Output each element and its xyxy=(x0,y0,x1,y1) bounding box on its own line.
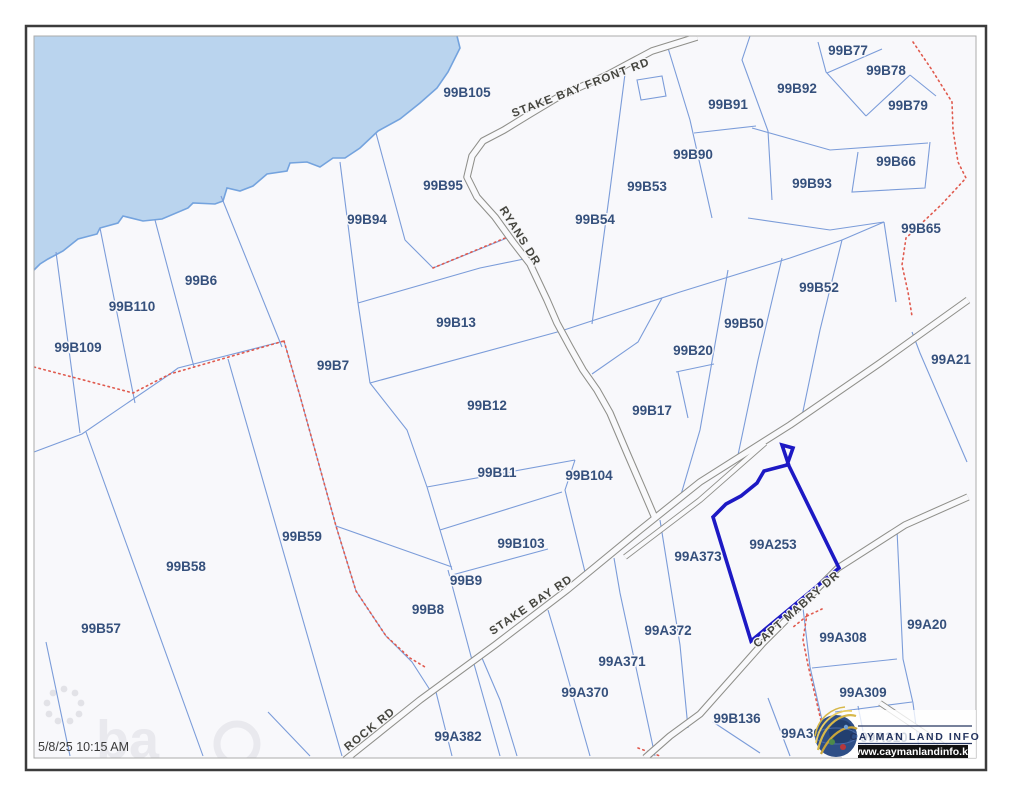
parcel-label-99A253[interactable]: 99A253 xyxy=(749,537,797,552)
parcel-label-99B94[interactable]: 99B94 xyxy=(347,212,387,227)
parcel-label-99A370[interactable]: 99A370 xyxy=(561,685,608,700)
parcel-label-99B8[interactable]: 99B8 xyxy=(412,602,445,617)
parcel-label-99B79[interactable]: 99B79 xyxy=(888,98,928,113)
parcel-label-99B103[interactable]: 99B103 xyxy=(497,536,545,551)
parcel-label-99B59[interactable]: 99B59 xyxy=(282,529,322,544)
parcel-label-99B65[interactable]: 99B65 xyxy=(901,221,941,236)
parcel-label-99B52[interactable]: 99B52 xyxy=(799,280,839,295)
map-viewer-page: ba xyxy=(0,0,1012,794)
parcel-label-99B90[interactable]: 99B90 xyxy=(673,147,713,162)
parcel-label-99B7[interactable]: 99B7 xyxy=(317,358,349,373)
map-canvas[interactable]: ba xyxy=(0,0,1012,794)
parcel-label-99A373[interactable]: 99A373 xyxy=(674,549,722,564)
parcel-label-99A21[interactable]: 99A21 xyxy=(931,352,971,367)
parcel-label-99B58[interactable]: 99B58 xyxy=(166,559,206,574)
parcel-label-99B91[interactable]: 99B91 xyxy=(708,97,748,112)
parcel-label-99B93[interactable]: 99B93 xyxy=(792,176,832,191)
parcel-label-99A371[interactable]: 99A371 xyxy=(598,654,646,669)
parcel-label-99B77[interactable]: 99B77 xyxy=(828,43,868,58)
parcel-label-99B12[interactable]: 99B12 xyxy=(467,398,507,413)
logo-url[interactable]: www.caymanlandinfo.ky xyxy=(851,746,974,758)
parcel-label-99B11[interactable]: 99B11 xyxy=(477,465,517,480)
parcel-label-99B6[interactable]: 99B6 xyxy=(185,273,218,288)
parcel-label-99B53[interactable]: 99B53 xyxy=(627,179,667,194)
parcel-label-99B54[interactable]: 99B54 xyxy=(575,212,615,227)
parcel-label-99B109[interactable]: 99B109 xyxy=(54,340,101,355)
parcel-label-99A372[interactable]: 99A372 xyxy=(644,623,691,638)
parcel-label-99A20[interactable]: 99A20 xyxy=(907,617,947,632)
parcel-label-99B136[interactable]: 99B136 xyxy=(713,711,761,726)
parcel-label-99A309[interactable]: 99A309 xyxy=(839,685,886,700)
parcel-label-99B66[interactable]: 99B66 xyxy=(876,154,916,169)
parcel-label-99B17[interactable]: 99B17 xyxy=(632,403,672,418)
parcel-label-99B50[interactable]: 99B50 xyxy=(724,316,764,331)
parcel-label-99B57[interactable]: 99B57 xyxy=(81,621,121,636)
parcel-label-99B92[interactable]: 99B92 xyxy=(777,81,817,96)
timestamp: 5/8/25 10:15 AM xyxy=(38,740,129,754)
parcel-label-99B20[interactable]: 99B20 xyxy=(673,343,713,358)
parcel-label-99B95[interactable]: 99B95 xyxy=(423,178,463,193)
parcel-label-99B9[interactable]: 99B9 xyxy=(450,573,482,588)
parcel-label-99B110[interactable]: 99B110 xyxy=(109,299,156,314)
parcel-label-99B104[interactable]: 99B104 xyxy=(565,468,613,483)
parcel-label-99B78[interactable]: 99B78 xyxy=(866,63,906,78)
parcel-label-99A308[interactable]: 99A308 xyxy=(819,630,867,645)
parcel-label-99B13[interactable]: 99B13 xyxy=(436,315,476,330)
logo-title: CAYMAN LAND INFO xyxy=(850,731,981,743)
parcel-label-99A382[interactable]: 99A382 xyxy=(434,729,481,744)
parcel-label-99B105[interactable]: 99B105 xyxy=(443,85,491,100)
